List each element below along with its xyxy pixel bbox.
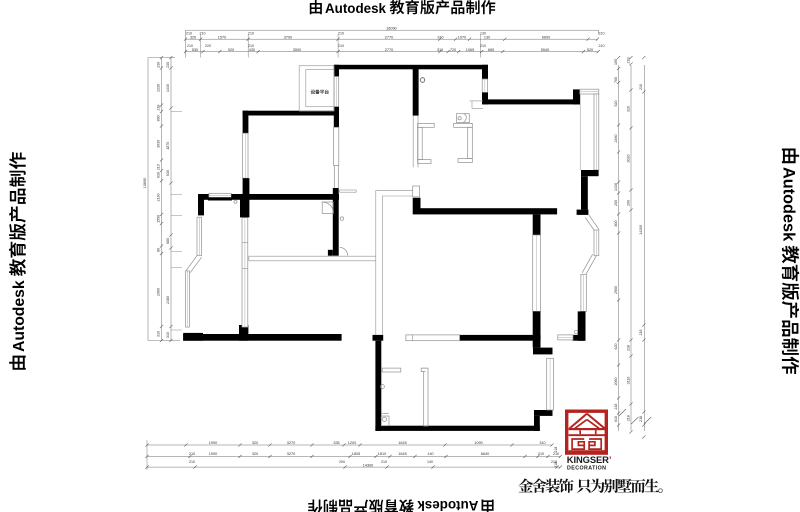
svg-text:1805: 1805 (352, 452, 360, 456)
svg-text:210: 210 (480, 44, 486, 48)
svg-text:130: 130 (484, 35, 490, 39)
svg-text:218: 218 (639, 416, 643, 422)
svg-text:210: 210 (157, 164, 161, 170)
svg-text:520: 520 (614, 101, 618, 107)
svg-text:1870: 1870 (166, 142, 170, 150)
svg-text:210: 210 (338, 44, 344, 48)
svg-text:140: 140 (427, 460, 433, 464)
svg-text:3270: 3270 (287, 452, 295, 456)
svg-text:218: 218 (157, 105, 161, 111)
svg-text:210: 210 (338, 32, 344, 36)
svg-text:210: 210 (189, 460, 195, 464)
svg-text:310: 310 (539, 441, 545, 445)
svg-text:530: 530 (192, 48, 198, 52)
svg-text:1990: 1990 (209, 441, 217, 445)
svg-text:2060: 2060 (614, 378, 618, 386)
svg-text:720: 720 (450, 48, 456, 52)
svg-text:1430: 1430 (614, 183, 618, 191)
svg-text:210: 210 (187, 44, 193, 48)
svg-text:220: 220 (205, 44, 211, 48)
svg-text:2130: 2130 (157, 194, 161, 202)
svg-text:1645: 1645 (398, 441, 406, 445)
svg-text:680: 680 (166, 238, 170, 244)
svg-text:765: 765 (614, 77, 618, 83)
svg-text:630: 630 (166, 170, 170, 176)
svg-text:10690: 10690 (143, 178, 147, 189)
svg-text:210: 210 (186, 32, 192, 36)
svg-text:KINGSER’: KINGSER’ (567, 454, 612, 465)
svg-text:218: 218 (554, 462, 558, 468)
svg-text:200: 200 (614, 200, 618, 206)
svg-text:890: 890 (157, 115, 161, 121)
svg-text:3020: 3020 (626, 155, 630, 163)
svg-text:430: 430 (249, 48, 255, 52)
svg-text:210: 210 (381, 460, 387, 464)
svg-text:1430: 1430 (166, 84, 170, 92)
svg-text:1090: 1090 (474, 441, 482, 445)
svg-text:218: 218 (614, 404, 618, 410)
svg-text:320: 320 (252, 441, 258, 445)
svg-text:1970: 1970 (458, 35, 466, 39)
svg-text:210: 210 (248, 44, 254, 48)
svg-text:310: 310 (157, 331, 161, 337)
svg-text:14300: 14300 (363, 463, 374, 467)
svg-text:320: 320 (626, 106, 630, 112)
svg-text:920: 920 (228, 48, 234, 52)
svg-text:210: 210 (639, 84, 643, 90)
svg-text:DECORATION: DECORATION (567, 465, 606, 471)
svg-text:1990: 1990 (209, 452, 217, 456)
svg-text:230: 230 (157, 62, 161, 68)
svg-text:218: 218 (639, 330, 643, 336)
svg-text:6640: 6640 (481, 452, 489, 456)
svg-text:210: 210 (248, 32, 254, 36)
svg-text:2960: 2960 (157, 288, 161, 296)
svg-text:80: 80 (157, 248, 161, 252)
svg-text:218: 218 (626, 345, 630, 351)
svg-text:620: 620 (614, 344, 618, 350)
svg-text:3500: 3500 (293, 48, 301, 52)
svg-text:200: 200 (626, 200, 630, 206)
svg-text:2460: 2460 (614, 135, 618, 143)
svg-text:210: 210 (599, 44, 605, 48)
svg-text:2900: 2900 (614, 286, 618, 294)
svg-text:210: 210 (200, 32, 206, 36)
svg-text:6690: 6690 (542, 35, 550, 39)
svg-text:1645: 1645 (398, 452, 406, 456)
svg-text:130: 130 (480, 32, 486, 36)
svg-text:1810: 1810 (378, 452, 386, 456)
svg-text:665: 665 (488, 48, 494, 52)
svg-text:800: 800 (614, 221, 618, 227)
svg-text:310: 310 (166, 332, 170, 338)
svg-text:218: 218 (626, 415, 630, 421)
svg-text:5540: 5540 (541, 48, 549, 52)
svg-text:140: 140 (427, 452, 433, 456)
svg-text:520: 520 (587, 48, 593, 52)
svg-text:3030: 3030 (157, 140, 161, 148)
svg-text:320: 320 (252, 452, 258, 456)
svg-text:1200: 1200 (348, 441, 356, 445)
svg-text:3270: 3270 (287, 441, 295, 445)
svg-text:230: 230 (166, 62, 170, 68)
svg-text:14200: 14200 (639, 225, 643, 235)
svg-text:610: 610 (614, 416, 618, 422)
svg-text:16090: 16090 (386, 26, 397, 30)
svg-text:2480: 2480 (166, 296, 170, 304)
svg-text:210: 210 (189, 452, 195, 456)
svg-text:195: 195 (614, 59, 618, 65)
svg-text:320: 320 (190, 35, 196, 39)
svg-text:210: 210 (599, 32, 605, 36)
svg-text:2770: 2770 (385, 48, 393, 52)
svg-text:335: 335 (333, 441, 339, 445)
svg-text:1330: 1330 (157, 84, 161, 92)
svg-text:1570: 1570 (218, 35, 226, 39)
svg-text:2770: 2770 (385, 35, 393, 39)
svg-text:3790: 3790 (284, 35, 292, 39)
svg-text:218: 218 (554, 447, 558, 453)
svg-text:630: 630 (157, 172, 161, 178)
svg-text:200: 200 (339, 460, 345, 464)
svg-text:3110: 3110 (626, 377, 630, 385)
svg-text:1065: 1065 (466, 48, 474, 52)
